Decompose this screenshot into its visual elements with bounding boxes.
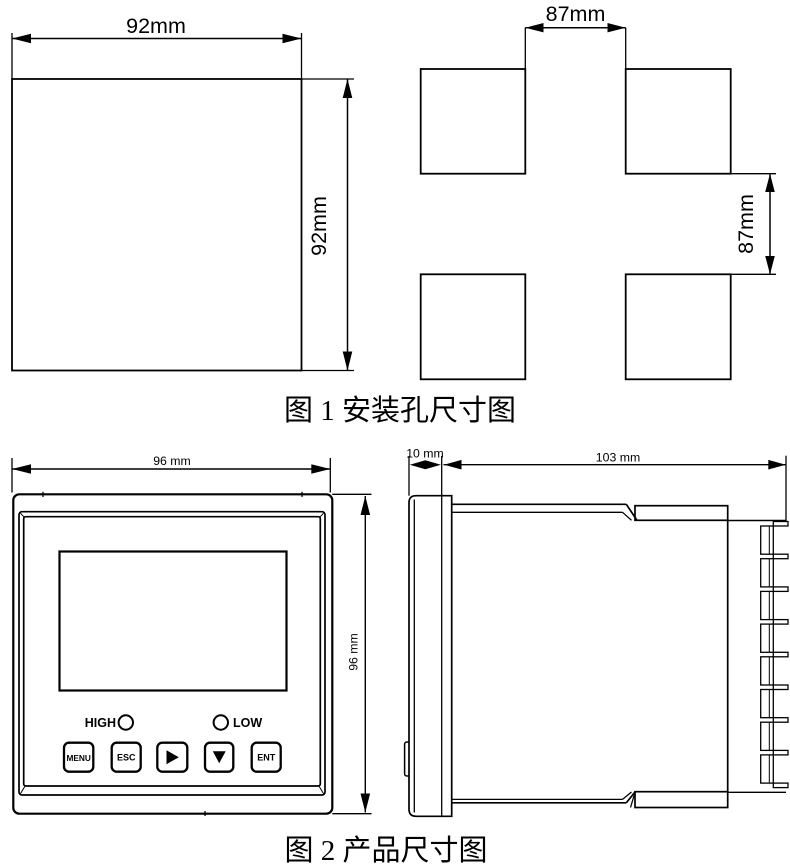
mounting-clip-top	[635, 506, 728, 521]
arrowhead-down-icon	[765, 256, 775, 274]
clip-square-top-left	[421, 69, 526, 174]
bezel-miter	[21, 513, 25, 518]
fig1-clip-width-dimension: 87mm	[525, 2, 625, 69]
indicator-row: HIGH LOW	[85, 715, 263, 730]
front-height-label: 96 mm	[347, 633, 361, 671]
arrowhead-down-icon	[343, 352, 353, 371]
arrowhead-right-icon	[768, 460, 786, 470]
clip-square-top-right	[626, 69, 731, 174]
fig1-width-dimension: 92mm	[12, 14, 302, 79]
double-arrowhead-icon	[410, 460, 441, 469]
bezel-depth-dimension: 10 mm	[406, 447, 444, 496]
low-led-icon	[214, 715, 228, 729]
fig1-left-cutout: 92mm 92mm	[12, 14, 354, 371]
drawing-canvas: 92mm 92mm 87mm	[0, 0, 790, 868]
fig2-side-view: 10 mm 103 mm	[405, 447, 788, 817]
high-indicator-label: HIGH	[85, 716, 116, 730]
dimension-drawing-page: 92mm 92mm 87mm	[0, 0, 790, 868]
fig1-clip-width-label: 87mm	[546, 2, 606, 26]
body-depth-dimension: 103 mm	[444, 450, 787, 521]
fig1-width-label: 92mm	[126, 14, 186, 38]
high-led-icon	[119, 715, 133, 729]
clip-square-bottom-right	[626, 274, 731, 379]
arrowhead-up-icon	[361, 496, 371, 515]
side-body	[452, 504, 728, 807]
arrowhead-right-icon	[608, 23, 626, 32]
bezel-miter	[319, 513, 323, 518]
bezel-depth-label: 10 mm	[406, 447, 444, 461]
side-bezel	[409, 496, 452, 817]
menu-button-label: MENU	[66, 753, 90, 763]
figure2-caption: 图 2 产品尺寸图	[284, 834, 487, 867]
front-height-dimension: 96 mm	[332, 494, 371, 813]
arrowhead-right-icon	[283, 34, 302, 44]
figure1-caption: 图 1 安装孔尺寸图	[284, 394, 516, 427]
front-bezel-inner	[24, 517, 321, 786]
display-screen	[60, 552, 287, 691]
arrowhead-down-icon	[361, 794, 371, 813]
arrowhead-left-icon	[525, 23, 543, 32]
low-indicator-label: LOW	[233, 716, 262, 730]
fig1-height-dimension: 92mm	[302, 79, 355, 371]
arrowhead-up-icon	[765, 174, 775, 192]
arrowhead-up-icon	[343, 79, 353, 98]
down-triangle-icon	[213, 751, 226, 763]
right-triangle-icon	[167, 750, 179, 764]
front-width-label: 96 mm	[153, 454, 191, 468]
arrowhead-left-icon	[12, 34, 31, 44]
mounting-clip-bottom	[635, 792, 728, 808]
fig1-height-label: 92mm	[307, 196, 331, 256]
arrowhead-right-icon	[311, 464, 330, 474]
fig1-clip-cutout: 87mm 87mm	[421, 2, 776, 379]
arrowhead-left-icon	[444, 460, 462, 470]
ent-button-label: ENT	[257, 753, 276, 763]
arrowhead-left-icon	[12, 464, 31, 474]
fig1-cutout-square	[12, 79, 302, 371]
esc-button-label: ESC	[117, 753, 136, 763]
bezel-miter	[21, 787, 25, 794]
fig1-clip-height-dimension: 87mm	[731, 174, 776, 275]
clip-square-bottom-left	[421, 274, 526, 379]
fig1-clip-height-label: 87mm	[734, 194, 758, 254]
rear-terminal-block	[728, 521, 788, 793]
bezel-miter	[319, 787, 323, 794]
front-width-dimension: 96 mm	[12, 454, 330, 493]
body-depth-label: 103 mm	[596, 450, 640, 464]
fig2-front-view: HIGH LOW MENU ESC ENT 96 mm	[12, 454, 372, 816]
button-row: MENU ESC ENT	[64, 743, 281, 772]
front-housing-outline	[13, 494, 332, 813]
